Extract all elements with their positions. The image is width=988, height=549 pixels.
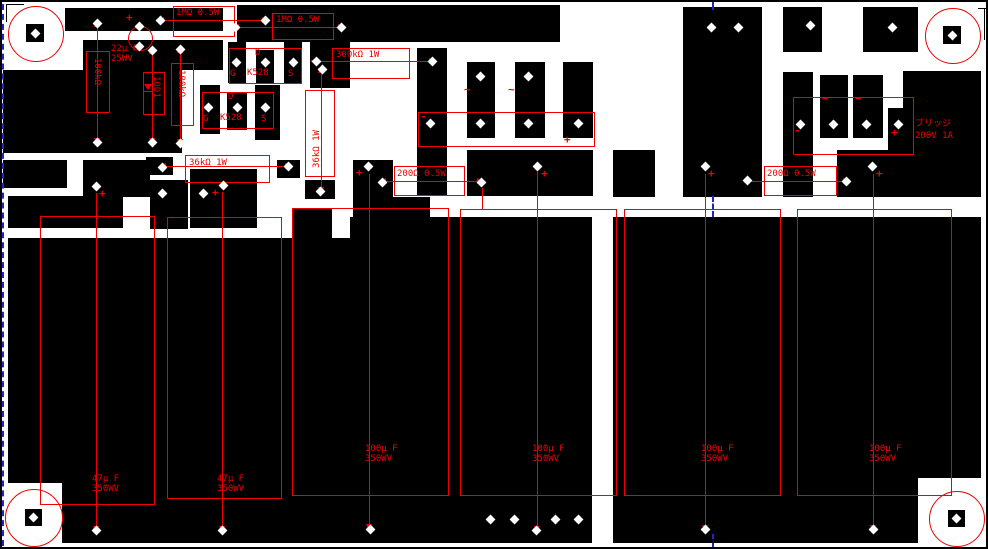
board-edge-guide [2, 4, 4, 546]
silk-label-d10d1[interactable]: 10D1 [151, 76, 161, 98]
copper-region[interactable] [683, 7, 762, 197]
panel-split-guide [712, 196, 714, 217]
silk-label-bridge-name[interactable]: ブリッジ [915, 119, 951, 129]
silk-label-fet-gate[interactable]: G [230, 69, 235, 79]
silk-label-r100k[interactable]: 100kΩ [176, 70, 186, 97]
copper-region[interactable] [613, 150, 655, 197]
ac-mark: ~ [464, 85, 471, 94]
silk-label-r36k[interactable]: 36kΩ 1W [189, 158, 227, 168]
silk-label-c100[interactable]: 100μ F [365, 444, 398, 454]
silk-label-c47[interactable]: 47μ F [217, 474, 244, 484]
silk-label-r1m[interactable]: 1MΩ 0.5W [176, 8, 219, 18]
silk-label-fet-part[interactable]: K528 [247, 68, 269, 78]
panel-split-guide [712, 0, 714, 10]
silk-label-c100[interactable]: 350WV [869, 454, 896, 464]
board-corner-tick [984, 8, 985, 40]
silk-label-fet-part[interactable]: K528 [220, 113, 242, 123]
copper-region[interactable] [467, 150, 593, 196]
plus-mark: + [564, 135, 571, 144]
silk-label-c100[interactable]: 350WV [365, 454, 392, 464]
silk-label-c100[interactable]: 100μ F [869, 444, 902, 454]
silk-label-c100[interactable]: 350WV [532, 454, 559, 464]
silk-label-fet-drain[interactable]: D [228, 92, 233, 102]
panel-split-guide [712, 534, 714, 548]
board-corner-tick [6, 4, 24, 5]
plus-mark: + [708, 169, 715, 178]
silk-label-r36k[interactable]: 36kΩ 1W [312, 130, 322, 168]
pcb-layout-canvas: 1MΩ 0.5W1MΩ 0.5W300kΩ 1W36kΩ 1W36kΩ 1W20… [0, 0, 988, 549]
silk-label-c47[interactable]: 350WV [217, 484, 244, 494]
silk-label-c47[interactable]: 350WV [92, 484, 119, 494]
silk-label-c100[interactable]: 350WV [701, 454, 728, 464]
silk-label-r200[interactable]: 200Ω 0.5W [397, 169, 446, 179]
silk-label-c100[interactable]: 100μ F [701, 444, 734, 454]
board-corner-tick [6, 4, 7, 22]
leader-line[interactable] [482, 188, 483, 210]
ac-mark: ~ [508, 85, 515, 94]
minus-mark: - [420, 112, 427, 121]
silk-label-fet-source[interactable]: S [288, 69, 293, 79]
plus-mark: + [99, 189, 106, 198]
plus-mark: + [356, 168, 363, 177]
plus-mark: + [212, 188, 219, 197]
plus-mark: + [541, 169, 548, 178]
silk-label-bridge-rating[interactable]: 200V 1A [915, 131, 953, 141]
silk-label-fet-source[interactable]: S [261, 114, 266, 124]
component-outline-c47-b[interactable] [167, 217, 282, 499]
silk-label-fet-gate[interactable]: G [203, 114, 208, 124]
silk-label-r1m[interactable]: 1MΩ 0.5W [276, 15, 319, 25]
ac-mark: ~ [822, 94, 829, 103]
board-corner-tick [978, 8, 987, 9]
silk-label-fet-drain[interactable]: D [255, 48, 260, 58]
silk-label-r100k[interactable]: 100kΩ [92, 58, 102, 85]
silk-label-r300k[interactable]: 300kΩ 1W [336, 50, 379, 60]
silk-label-c47[interactable]: 47μ F [92, 474, 119, 484]
copper-region[interactable] [83, 160, 150, 197]
copper-region[interactable] [783, 7, 822, 52]
copper-region[interactable] [837, 150, 903, 197]
plus-mark: + [126, 13, 133, 22]
copper-region[interactable] [3, 160, 67, 188]
plus-mark: + [891, 128, 898, 137]
plus-mark: + [876, 169, 883, 178]
component-outline-c47-a[interactable] [40, 216, 155, 505]
ac-mark: ~ [855, 94, 862, 103]
silk-label-c100[interactable]: 100μ F [532, 444, 565, 454]
silk-label-r200[interactable]: 200Ω 0.5W [767, 169, 816, 179]
silk-label-c22[interactable]: 25WV [111, 54, 133, 64]
